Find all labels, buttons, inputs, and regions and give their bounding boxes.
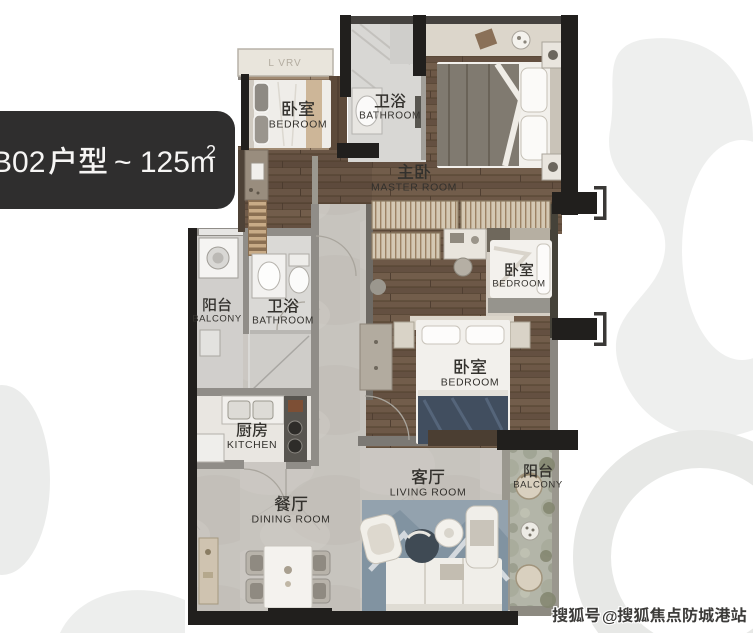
svg-text:DINING ROOM: DINING ROOM: [252, 514, 331, 526]
svg-text:B02: B02: [0, 146, 45, 179]
svg-text:~ 125m: ~ 125m: [114, 146, 215, 179]
svg-text:MASTER ROOM: MASTER ROOM: [371, 182, 457, 194]
svg-text:BATHROOM: BATHROOM: [252, 316, 314, 327]
svg-text:BEDROOM: BEDROOM: [269, 119, 327, 131]
svg-text:2: 2: [206, 142, 216, 162]
svg-text:BEDROOM: BEDROOM: [492, 279, 545, 290]
svg-text:BALCONY: BALCONY: [192, 314, 242, 325]
svg-text:L VRV: L VRV: [268, 58, 301, 69]
svg-text:BATHROOM: BATHROOM: [359, 111, 421, 122]
svg-text:KITCHEN: KITCHEN: [227, 439, 277, 451]
svg-text:LIVING ROOM: LIVING ROOM: [390, 487, 467, 499]
svg-text:@: @: [602, 609, 618, 626]
svg-text:BEDROOM: BEDROOM: [441, 377, 499, 389]
svg-text:BALCONY: BALCONY: [513, 480, 563, 491]
